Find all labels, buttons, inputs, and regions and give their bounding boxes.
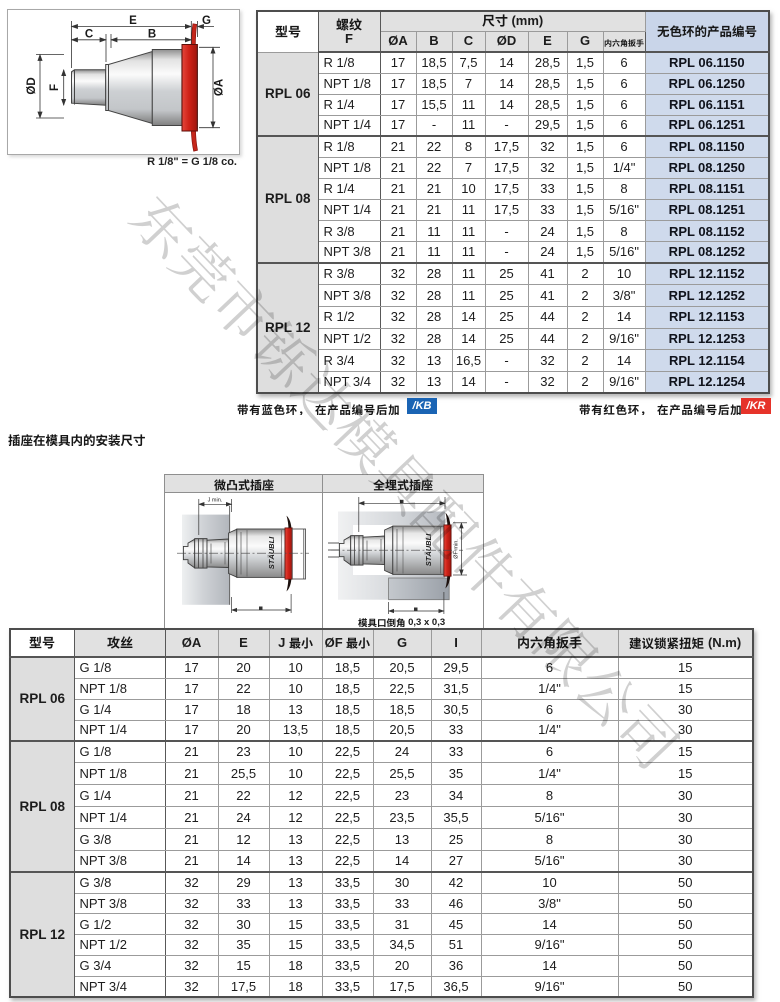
svg-text:ØD: ØD (26, 77, 38, 94)
svg-text:STÄUBLI: STÄUBLI (267, 536, 276, 569)
svg-text:STÄUBLI: STÄUBLI (424, 533, 433, 566)
svg-text:J min.: J min. (208, 498, 223, 504)
svg-text:G: G (202, 15, 211, 27)
svg-text:E: E (129, 15, 137, 27)
svg-text:B: B (148, 29, 156, 41)
svg-text:ØA: ØA (214, 79, 226, 96)
svg-text:ØF min.: ØF min. (454, 539, 460, 559)
svg-text:F: F (49, 84, 61, 91)
svg-text:C: C (85, 29, 93, 41)
